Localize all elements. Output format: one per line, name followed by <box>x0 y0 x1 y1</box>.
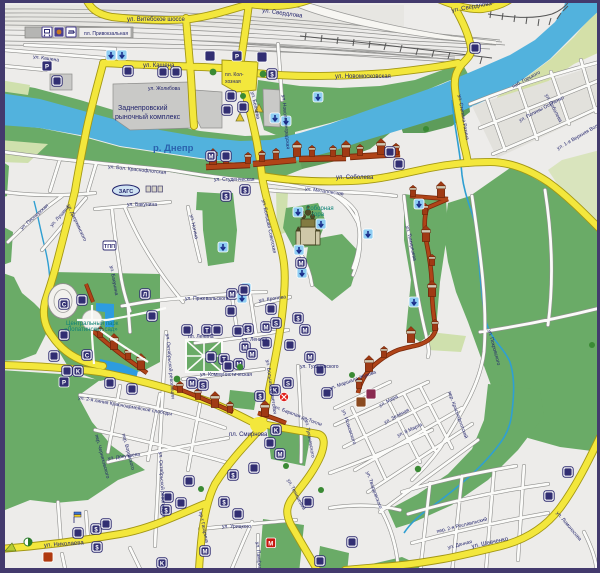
svg-text:ул. Тухачевского: ул. Тухачевского <box>300 364 339 370</box>
svg-text:M: M <box>268 542 273 548</box>
svg-text:C: C <box>85 353 90 359</box>
svg-text:M: M <box>250 352 255 358</box>
svg-text:K: K <box>76 369 81 375</box>
svg-text:ЗАГС: ЗАГС <box>119 189 133 195</box>
svg-text:M: M <box>303 328 308 334</box>
svg-text:M: M <box>203 549 208 555</box>
svg-text:M: M <box>278 452 283 458</box>
svg-text:ул. Бакунина: ул. Бакунина <box>127 202 157 208</box>
svg-text:Заднепровский: Заднепровский <box>118 104 168 112</box>
svg-text:ул. Ленина: ул. Ленина <box>242 337 267 343</box>
svg-text:ул. Кашена: ул. Кашена <box>143 63 175 69</box>
svg-text:ул. Новомосковская: ул. Новомосковская <box>335 74 391 80</box>
svg-text:Центральный парк: Центральный парк <box>66 320 119 327</box>
svg-text:M: M <box>230 292 235 298</box>
svg-text:ул. Соболева: ул. Соболева <box>336 175 374 181</box>
svg-text:ул. Пржевальского: ул. Пржевальского <box>185 296 229 302</box>
svg-text:P: P <box>45 64 49 70</box>
svg-text:P: P <box>235 54 239 60</box>
svg-text:гора: гора <box>312 212 325 218</box>
svg-text:P: P <box>62 380 66 386</box>
svg-text:пл. Смирнова: пл. Смирнова <box>229 432 268 438</box>
svg-text:K: K <box>160 561 165 567</box>
svg-text:р. Днепр: р. Днепр <box>153 143 194 154</box>
svg-text:M: M <box>264 325 269 331</box>
svg-text:ул. Урицкого: ул. Урицкого <box>222 524 251 530</box>
svg-text:ул. Коммунистическая: ул. Коммунистическая <box>200 372 252 378</box>
svg-text:M: M <box>299 261 304 267</box>
svg-text:рыночный комплекс: рыночный комплекс <box>115 113 181 121</box>
svg-text:M: M <box>190 381 195 387</box>
svg-text:пл. Кол-: пл. Кол- <box>225 72 244 78</box>
svg-text:K: K <box>274 428 279 434</box>
svg-text:S: S <box>274 321 278 327</box>
svg-text:«Лопатинский сад»: «Лопатинский сад» <box>64 326 118 333</box>
svg-text:ул. Витебское шоссе: ул. Витебское шоссе <box>127 17 186 23</box>
svg-text:M: M <box>209 154 214 160</box>
svg-text:M: M <box>308 355 313 361</box>
svg-text:пл. Ленина: пл. Ленина <box>188 334 214 340</box>
svg-text:Л: Л <box>143 292 147 298</box>
svg-text:S: S <box>201 383 205 389</box>
svg-text:ул. Жолибова: ул. Жолибова <box>148 86 180 92</box>
svg-text:пл. Привокзальная: пл. Привокзальная <box>84 31 128 37</box>
svg-text:C: C <box>62 302 67 308</box>
svg-text:S: S <box>286 381 290 387</box>
svg-text:ул. Студенческая: ул. Студенческая <box>214 177 255 183</box>
svg-text:ТПП: ТПП <box>104 244 115 250</box>
svg-text:хозная: хозная <box>225 79 241 85</box>
